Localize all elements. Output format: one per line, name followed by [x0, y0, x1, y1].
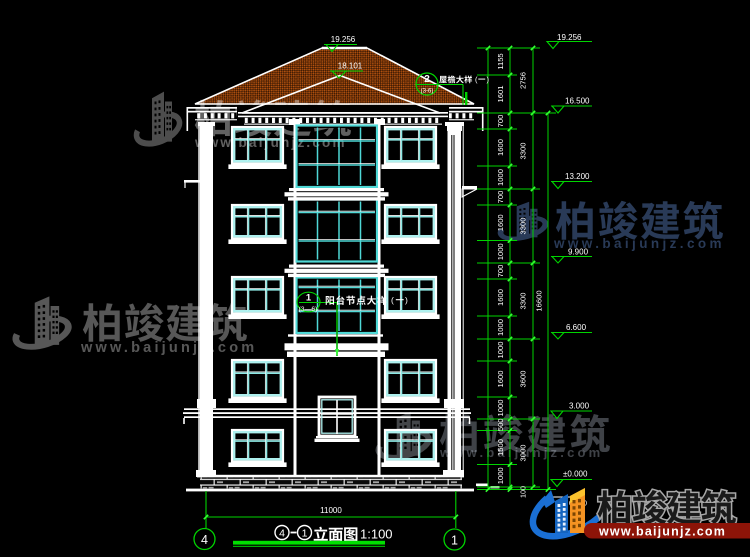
svg-text:19.256: 19.256 [331, 35, 356, 44]
svg-text:16.500: 16.500 [565, 97, 590, 106]
svg-text:1: 1 [302, 528, 308, 540]
svg-text:): ) [405, 295, 408, 305]
svg-text:(: ( [391, 295, 394, 305]
svg-text:www.baijunjz.com: www.baijunjz.com [194, 135, 347, 150]
svg-text:19.256: 19.256 [557, 33, 582, 42]
svg-text:1000: 1000 [496, 467, 505, 484]
svg-text:3300: 3300 [519, 143, 528, 160]
svg-text:1000: 1000 [496, 342, 505, 359]
svg-text:(3—6): (3—6) [299, 306, 318, 313]
svg-text:100: 100 [519, 486, 528, 498]
svg-text:3000: 3000 [519, 445, 528, 462]
svg-text:1: 1 [306, 293, 312, 304]
svg-text:3300: 3300 [519, 218, 528, 235]
svg-text:1600: 1600 [496, 214, 505, 231]
svg-text:1000: 1000 [496, 400, 505, 417]
svg-text:1: 1 [451, 534, 458, 548]
svg-text:www.baijunjz.com: www.baijunjz.com [598, 525, 726, 539]
svg-text:www.baijunjz.com: www.baijunjz.com [80, 340, 257, 356]
svg-text:1601: 1601 [496, 86, 505, 103]
svg-text:1:100: 1:100 [360, 527, 393, 542]
svg-text:1600: 1600 [496, 371, 505, 388]
svg-text:4: 4 [279, 528, 285, 540]
svg-text:1500: 1500 [496, 439, 505, 456]
svg-text:700: 700 [496, 191, 505, 204]
svg-text:1000: 1000 [496, 243, 505, 260]
svg-text:2756: 2756 [519, 72, 528, 89]
svg-text:3300: 3300 [519, 293, 528, 310]
svg-text:700: 700 [496, 115, 505, 128]
svg-text:13.200: 13.200 [565, 172, 590, 181]
svg-text:1600: 1600 [496, 139, 505, 156]
svg-text:500: 500 [496, 418, 505, 431]
svg-text:4: 4 [201, 533, 208, 547]
svg-text:16600: 16600 [535, 290, 544, 311]
svg-text:1000: 1000 [496, 169, 505, 186]
svg-text:9.900: 9.900 [568, 248, 589, 257]
svg-text:3600: 3600 [519, 371, 528, 388]
svg-text:6.600: 6.600 [566, 323, 587, 332]
svg-text:1600: 1600 [496, 289, 505, 306]
svg-text:(3-6): (3-6) [421, 89, 434, 95]
svg-text:2: 2 [424, 74, 430, 85]
svg-text:±0.000: ±0.000 [563, 470, 588, 479]
svg-text:11000: 11000 [320, 506, 342, 515]
svg-text:700: 700 [496, 265, 505, 278]
svg-text:1000: 1000 [496, 319, 505, 336]
svg-text:18.101: 18.101 [338, 62, 363, 71]
svg-text:3.000: 3.000 [569, 402, 590, 411]
svg-text:1155: 1155 [496, 53, 505, 69]
